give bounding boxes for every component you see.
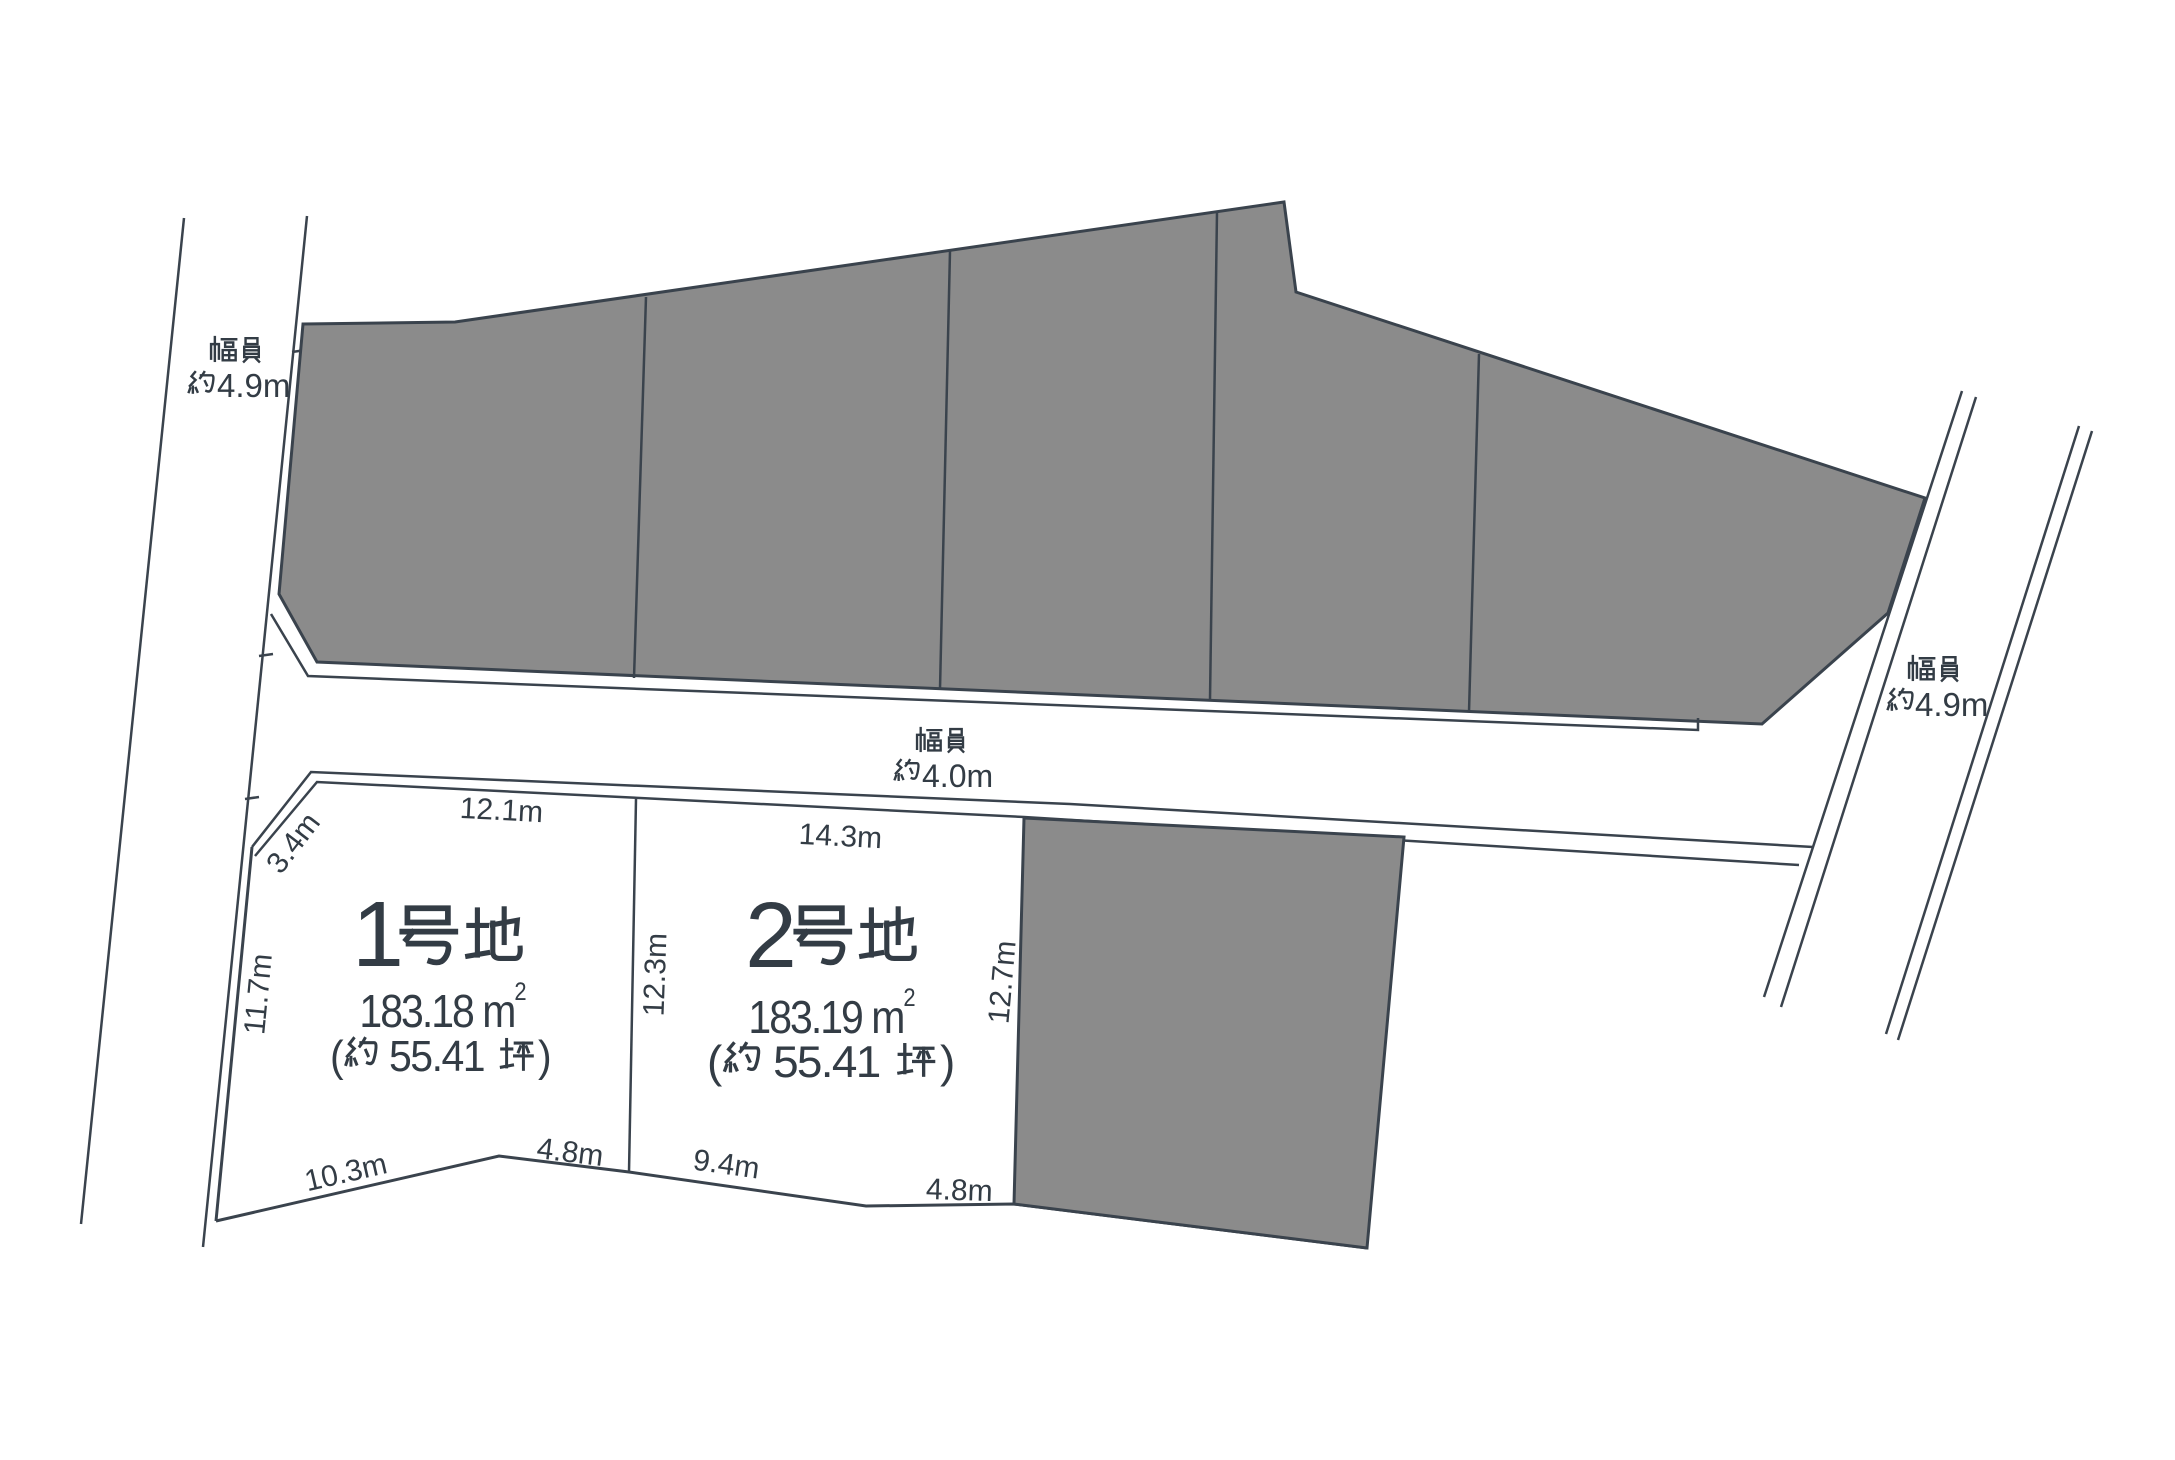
- svg-text:4.9m: 4.9m: [1915, 686, 1988, 723]
- svg-text:183.18 m2: 183.18 m2: [359, 978, 525, 1038]
- svg-text:4.8m: 4.8m: [535, 1132, 605, 1173]
- svg-text:14.3m: 14.3m: [798, 818, 883, 855]
- svg-text:(: (: [707, 1037, 722, 1087]
- svg-text:9.4m: 9.4m: [691, 1144, 762, 1186]
- svg-text:183.19 m2: 183.19 m2: [748, 984, 914, 1044]
- svg-text:11.7m: 11.7m: [238, 952, 279, 1036]
- svg-text:4.0m: 4.0m: [922, 758, 993, 794]
- svg-text:12.7m: 12.7m: [982, 939, 1022, 1025]
- svg-text:(: (: [330, 1032, 344, 1080]
- svg-text:1: 1: [352, 882, 404, 986]
- svg-text:4.8m: 4.8m: [925, 1173, 993, 1208]
- svg-text:4.9m: 4.9m: [217, 367, 290, 404]
- svg-text:): ): [538, 1032, 552, 1080]
- svg-text:55.41: 55.41: [773, 1037, 879, 1087]
- svg-text:3.4m: 3.4m: [260, 807, 327, 880]
- svg-text:2: 2: [745, 883, 797, 987]
- svg-text:): ): [940, 1037, 955, 1087]
- svg-text:12.3m: 12.3m: [638, 932, 674, 1016]
- svg-text:12.1m: 12.1m: [459, 792, 544, 829]
- svg-text:55.41: 55.41: [389, 1032, 484, 1080]
